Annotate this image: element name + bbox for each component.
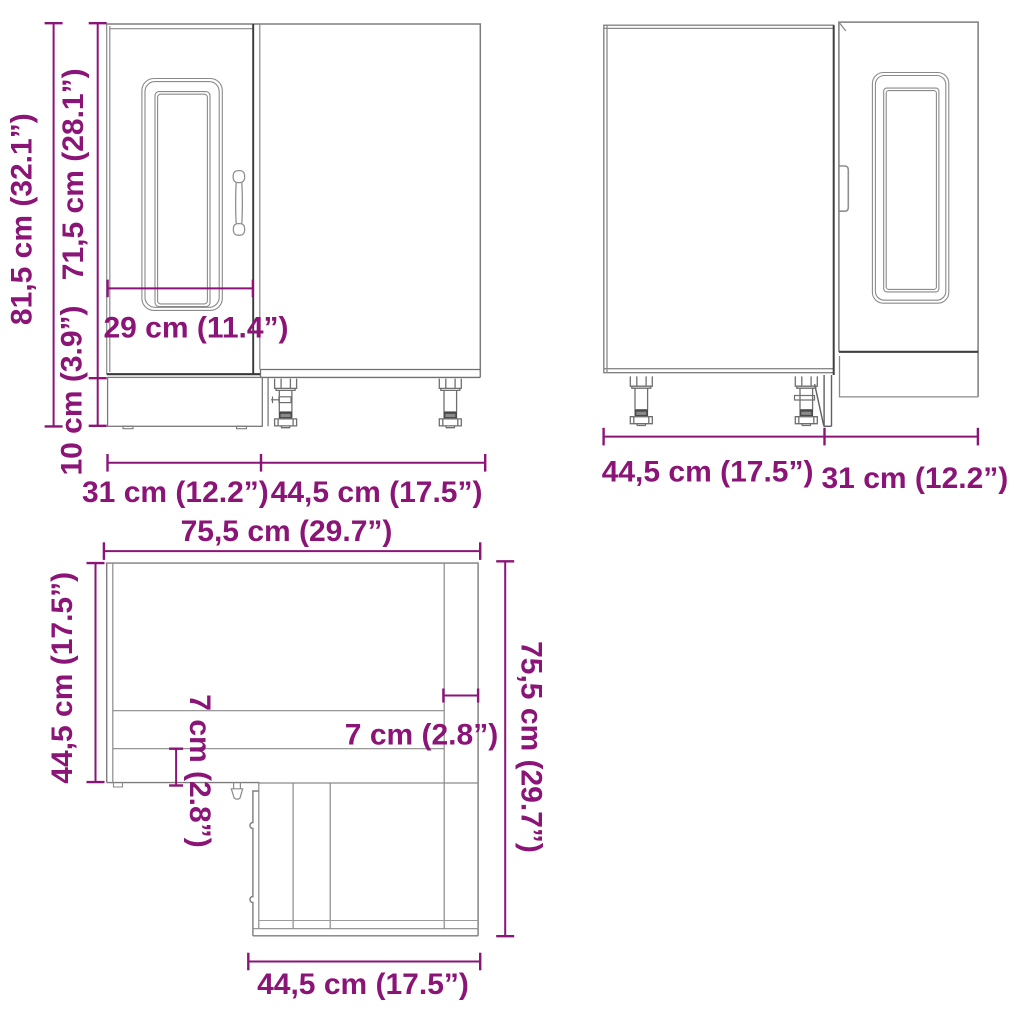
svg-text:44,5 cm (17.5”): 44,5 cm (17.5”) bbox=[271, 476, 483, 509]
svg-text:31 cm (12.2”): 31 cm (12.2”) bbox=[822, 462, 1009, 495]
svg-text:29 cm (11.4”): 29 cm (11.4”) bbox=[103, 312, 288, 345]
svg-text:75,5 cm (29.7”): 75,5 cm (29.7”) bbox=[181, 515, 393, 548]
svg-text:44,5 cm (17.5”): 44,5 cm (17.5”) bbox=[602, 456, 814, 489]
svg-text:71,5 cm (28.1”): 71,5 cm (28.1”) bbox=[57, 68, 90, 280]
svg-text:75,5 cm (29.7”): 75,5 cm (29.7”) bbox=[515, 641, 548, 853]
svg-text:7 cm (2.8”): 7 cm (2.8”) bbox=[183, 694, 216, 847]
svg-text:44,5 cm (17.5”): 44,5 cm (17.5”) bbox=[257, 968, 469, 1001]
svg-text:10 cm (3.9”): 10 cm (3.9”) bbox=[56, 305, 89, 475]
svg-text:7 cm (2.8”): 7 cm (2.8”) bbox=[345, 719, 498, 752]
svg-text:81,5 cm (32.1”): 81,5 cm (32.1”) bbox=[5, 113, 38, 325]
svg-text:31 cm (12.2”): 31 cm (12.2”) bbox=[82, 476, 269, 509]
svg-text:44,5 cm (17.5”): 44,5 cm (17.5”) bbox=[46, 572, 79, 784]
